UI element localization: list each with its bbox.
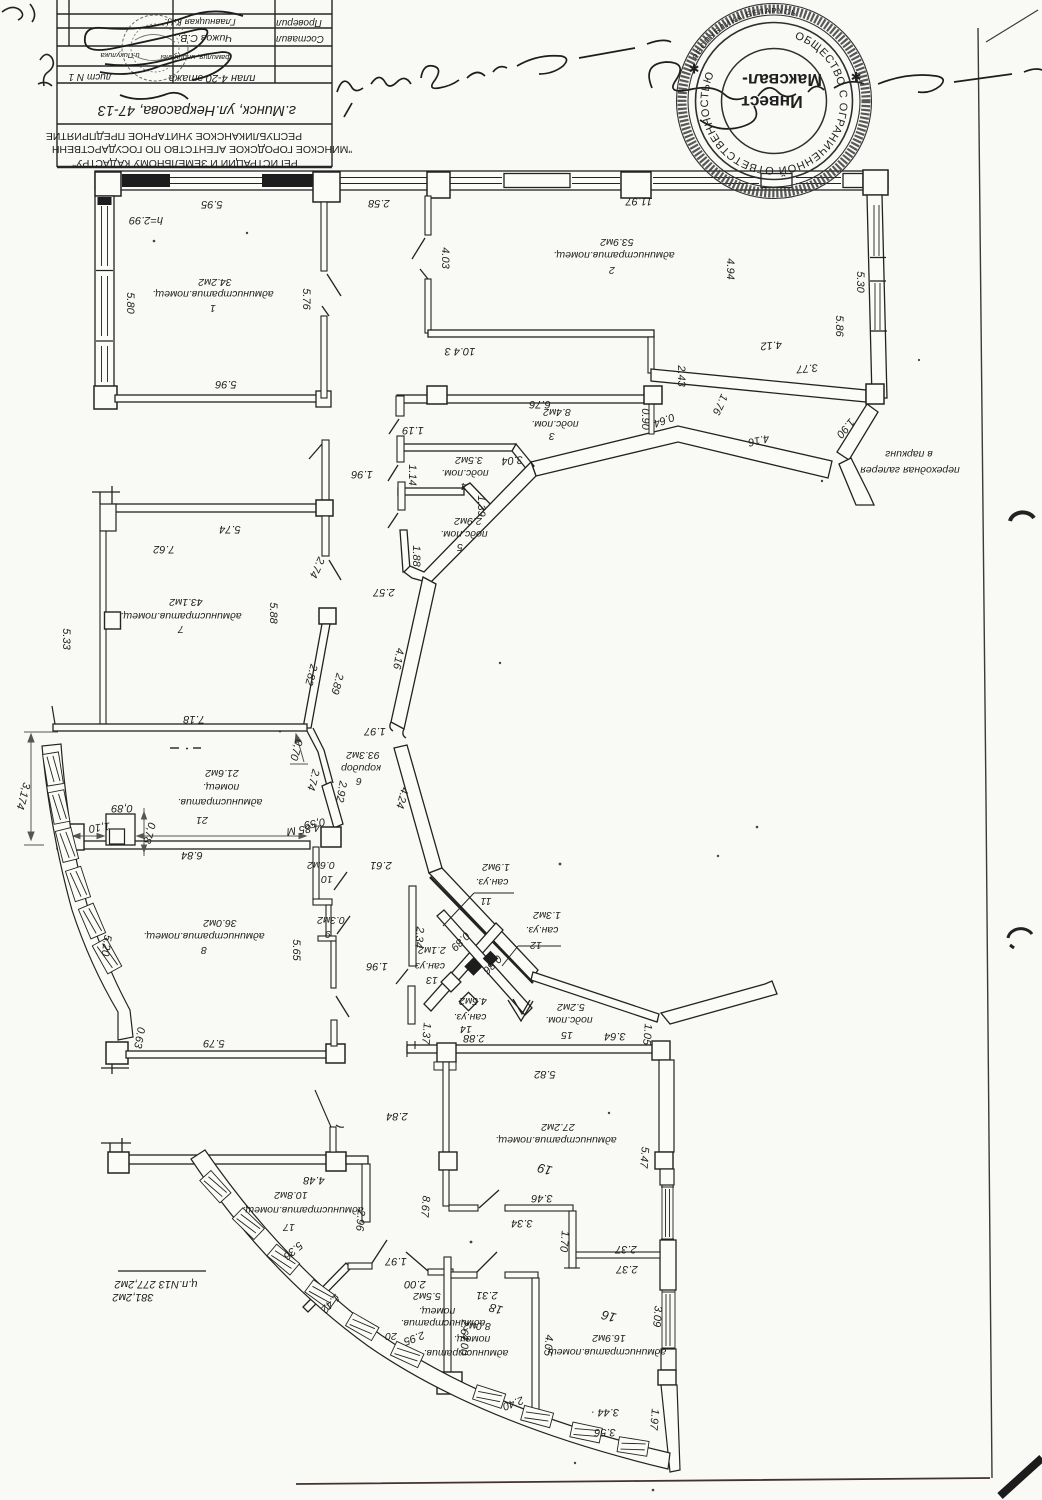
svg-text:1.14: 1.14 [406, 464, 418, 485]
svg-text:3.44 ·: 3.44 · [591, 1406, 619, 1418]
svg-text:2.61: 2.61 [370, 859, 392, 871]
svg-text:15: 15 [561, 1029, 573, 1041]
svg-text:0.6м2: 0.6м2 [307, 859, 335, 871]
svg-text:2.9м2: 2.9м2 [454, 515, 483, 527]
svg-text:381,2м2: 381,2м2 [112, 1291, 153, 1303]
svg-text:ц.п.N13 277,2м2: ц.п.N13 277,2м2 [115, 1278, 198, 1290]
svg-text:5.74: 5.74 [219, 523, 240, 535]
svg-text:36.0м2: 36.0м2 [203, 917, 237, 929]
svg-text:1.70: 1.70 [557, 1230, 571, 1253]
svg-text:5.95: 5.95 [200, 198, 222, 210]
svg-text:2.96: 2.96 [353, 1208, 367, 1232]
svg-text:7.18: 7.18 [182, 713, 204, 725]
svg-text:фамилия, инициалы: фамилия, инициалы [160, 53, 232, 62]
svg-text:3.77: 3.77 [795, 361, 818, 375]
svg-text:0.90: 0.90 [639, 408, 651, 430]
svg-text:4.12: 4.12 [760, 338, 782, 352]
svg-text:г.Минск, ул.Некрасова, 47-13: г.Минск, ул.Некрасова, 47-13 [98, 102, 296, 118]
svg-text:РЕСПУБЛИКАНСКОЕ УНИТАРНОЕ ПРЕД: РЕСПУБЛИКАНСКОЕ УНИТАРНОЕ ПРЕДПРИЯТИЕ [46, 130, 302, 142]
svg-text:5.96: 5.96 [214, 378, 236, 390]
svg-text:11.97: 11.97 [625, 195, 653, 207]
svg-text:сан.уз.: сан.уз. [476, 876, 509, 888]
svg-text:27.2м2: 27.2м2 [541, 1121, 576, 1133]
svg-text:подс.пом.: подс.пом. [545, 1014, 592, 1026]
svg-text:1.97: 1.97 [647, 1408, 661, 1431]
svg-text:2.88: 2.88 [462, 1032, 485, 1044]
svg-text:3.64: 3.64 [604, 1030, 625, 1042]
svg-text:2.84: 2.84 [386, 1110, 408, 1122]
svg-text:21: 21 [196, 814, 209, 826]
svg-text:административ.помещ.: административ.помещ. [495, 1134, 616, 1146]
svg-text:сан.уз.: сан.уз. [454, 1011, 487, 1023]
svg-text:5.33: 5.33 [60, 628, 72, 650]
svg-text:4.5м2: 4.5м2 [459, 995, 487, 1007]
svg-text:4.00: 4.00 [457, 1333, 471, 1356]
svg-text:2.31: 2.31 [476, 1289, 498, 1301]
svg-text:3.09: 3.09 [650, 1305, 664, 1327]
svg-text:1.88: 1.88 [410, 545, 422, 567]
svg-text:4.48: 4.48 [302, 1174, 324, 1186]
svg-text:1.37: 1.37 [419, 1022, 433, 1045]
svg-text:1.96: 1.96 [350, 468, 372, 480]
svg-text:1.39: 1.39 [475, 495, 487, 516]
svg-text:2.1м2: 2.1м2 [418, 944, 447, 956]
svg-text:"МИНСКОЕ ГОРОДСКОЕ АГЕНТСТВО П: "МИНСКОЕ ГОРОДСКОЕ АГЕНТСТВО ПО ГОСУДАРС… [52, 143, 352, 155]
svg-text:10.4 3: 10.4 3 [444, 345, 475, 357]
svg-text:5.30: 5.30 [854, 271, 866, 293]
svg-text:2.37: 2.37 [614, 1243, 637, 1255]
svg-text:h=2.99: h=2.99 [129, 214, 163, 226]
svg-text:1.97: 1.97 [384, 1255, 406, 1267]
svg-text:1.96: 1.96 [365, 960, 387, 972]
svg-text:4: 4 [461, 480, 467, 492]
svg-text:5: 5 [457, 541, 463, 553]
svg-text:✱: ✱ [688, 61, 699, 76]
svg-text:8.0м2: 8.0м2 [463, 1320, 491, 1332]
svg-text:4.94: 4.94 [724, 258, 736, 279]
svg-text:21.6м2: 21.6м2 [205, 767, 240, 779]
svg-text:2.37: 2.37 [615, 1263, 638, 1275]
svg-text:7.62: 7.62 [153, 543, 174, 555]
svg-text:5.86: 5.86 [833, 315, 845, 337]
svg-text:8: 8 [201, 944, 207, 956]
svg-text:Инвест: Инвест [741, 92, 803, 112]
svg-text:53.9м2: 53.9м2 [600, 236, 634, 248]
svg-text:административ.помещ: административ.помещ [548, 1346, 666, 1358]
svg-text:3.56: 3.56 [593, 1426, 615, 1438]
svg-text:административ.помещ.: административ.помещ. [152, 288, 273, 300]
svg-text:8.67: 8.67 [418, 1195, 432, 1218]
svg-text:20: 20 [385, 1330, 398, 1342]
svg-text:Максвал-: Максвал- [742, 70, 822, 90]
svg-text:43.1м2: 43.1м2 [169, 596, 203, 608]
svg-text:93.3м2: 93.3м2 [346, 749, 380, 761]
svg-text:5.76: 5.76 [300, 288, 312, 310]
svg-text:помещ.: помещ. [419, 1305, 456, 1317]
svg-text:подс.пом.: подс.пом. [441, 467, 488, 479]
svg-text:административ.: административ. [178, 796, 263, 808]
svg-text:переходная галерея: переходная галерея [860, 464, 960, 476]
svg-text:1.97: 1.97 [363, 725, 385, 737]
svg-text:административ.помещ.: административ.помещ. [242, 1204, 363, 1216]
svg-text:5.82: 5.82 [534, 1068, 555, 1080]
svg-text:13: 13 [426, 974, 438, 986]
svg-text:0,89: 0,89 [111, 802, 132, 814]
svg-text:5.65: 5.65 [290, 939, 302, 961]
svg-text:9: 9 [325, 928, 331, 940]
svg-text:6: 6 [356, 775, 362, 787]
svg-text:5.79: 5.79 [203, 1037, 224, 1049]
svg-text:4.03: 4.03 [439, 247, 451, 269]
svg-text:1: 1 [210, 302, 216, 314]
svg-text:2.00: 2.00 [403, 1278, 426, 1290]
svg-text:34.2м2: 34.2м2 [198, 276, 232, 288]
svg-text:Проверил: Проверил [276, 17, 322, 28]
svg-text:административ.помещ.: административ.помещ. [120, 610, 241, 622]
svg-text:помещ.: помещ. [203, 781, 240, 793]
svg-text:0.3м2: 0.3м2 [317, 914, 345, 926]
svg-text:РЕГИСТРАЦИИ И ЗЕМЕЛЬНОМУ КАДАС: РЕГИСТРАЦИИ И ЗЕМЕЛЬНОМУ КАДАСТРУ" [72, 157, 298, 169]
svg-text:2.58: 2.58 [367, 197, 390, 209]
svg-text:подс.пом.: подс.пом. [531, 418, 578, 430]
svg-text:административ.помещ.: административ.помещ. [143, 930, 264, 942]
svg-text:5.47: 5.47 [637, 1146, 651, 1169]
svg-text:3: 3 [549, 430, 555, 442]
svg-text:5.2м2: 5.2м2 [557, 1001, 585, 1013]
svg-text:1.05: 1.05 [640, 1023, 654, 1046]
svg-text:3.5м2: 3.5м2 [455, 454, 483, 466]
svg-text:5.88: 5.88 [267, 602, 279, 624]
svg-text:подс.пом.: подс.пом. [440, 528, 487, 540]
svg-text:17: 17 [282, 1221, 295, 1233]
svg-text:коридор: коридор [341, 762, 381, 774]
svg-text:3.34: 3.34 [511, 1217, 532, 1229]
svg-text:сан.уз: сан.уз [415, 960, 445, 972]
svg-text:2.57: 2.57 [372, 586, 395, 598]
svg-text:8.4м2: 8.4м2 [543, 406, 571, 418]
svg-text:✱: ✱ [850, 69, 861, 84]
svg-text:2: 2 [609, 264, 616, 276]
svg-text:3.46: 3.46 [530, 1192, 552, 1204]
svg-text:5.80: 5.80 [124, 292, 136, 314]
svg-text:10.8м2: 10.8м2 [274, 1189, 308, 1201]
svg-text:сан.уз.: сан.уз. [526, 924, 559, 936]
svg-text:11: 11 [481, 895, 492, 907]
svg-text:1.19: 1.19 [402, 424, 423, 436]
svg-text:в паркинг: в паркинг [885, 448, 933, 460]
svg-text:Составил: Составил [276, 33, 324, 44]
svg-text:10: 10 [321, 873, 333, 885]
svg-text:2.43: 2.43 [675, 364, 687, 387]
svg-text:5.5м2: 5.5м2 [413, 1290, 441, 1302]
svg-text:административ.помещ.: административ.помещ. [553, 249, 674, 261]
svg-text:3.04: 3.04 [501, 453, 523, 467]
svg-text:12: 12 [530, 939, 542, 951]
svg-text:6.84: 6.84 [181, 849, 202, 861]
svg-text:16.9м2: 16.9м2 [592, 1332, 626, 1344]
svg-text:1.9м2: 1.9м2 [482, 861, 510, 873]
svg-text:1.3м2: 1.3м2 [533, 909, 561, 921]
